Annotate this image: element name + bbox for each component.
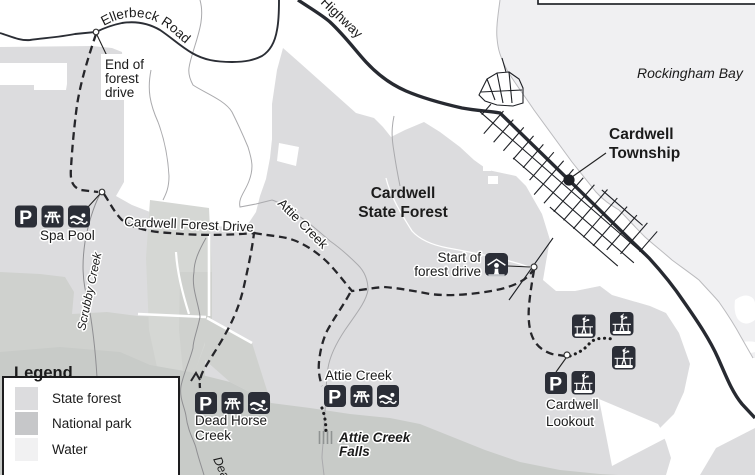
svg-text:Legend: Legend xyxy=(14,364,73,382)
svg-text:Water: Water xyxy=(52,442,88,457)
svg-text:Rockingham Bay: Rockingham Bay xyxy=(637,65,744,81)
svg-text:State forest: State forest xyxy=(52,391,121,406)
svg-text:Spa Pool: Spa Pool xyxy=(40,228,95,243)
svg-text:Attie Creek: Attie Creek xyxy=(325,368,392,383)
svg-text:National park: National park xyxy=(52,416,132,431)
